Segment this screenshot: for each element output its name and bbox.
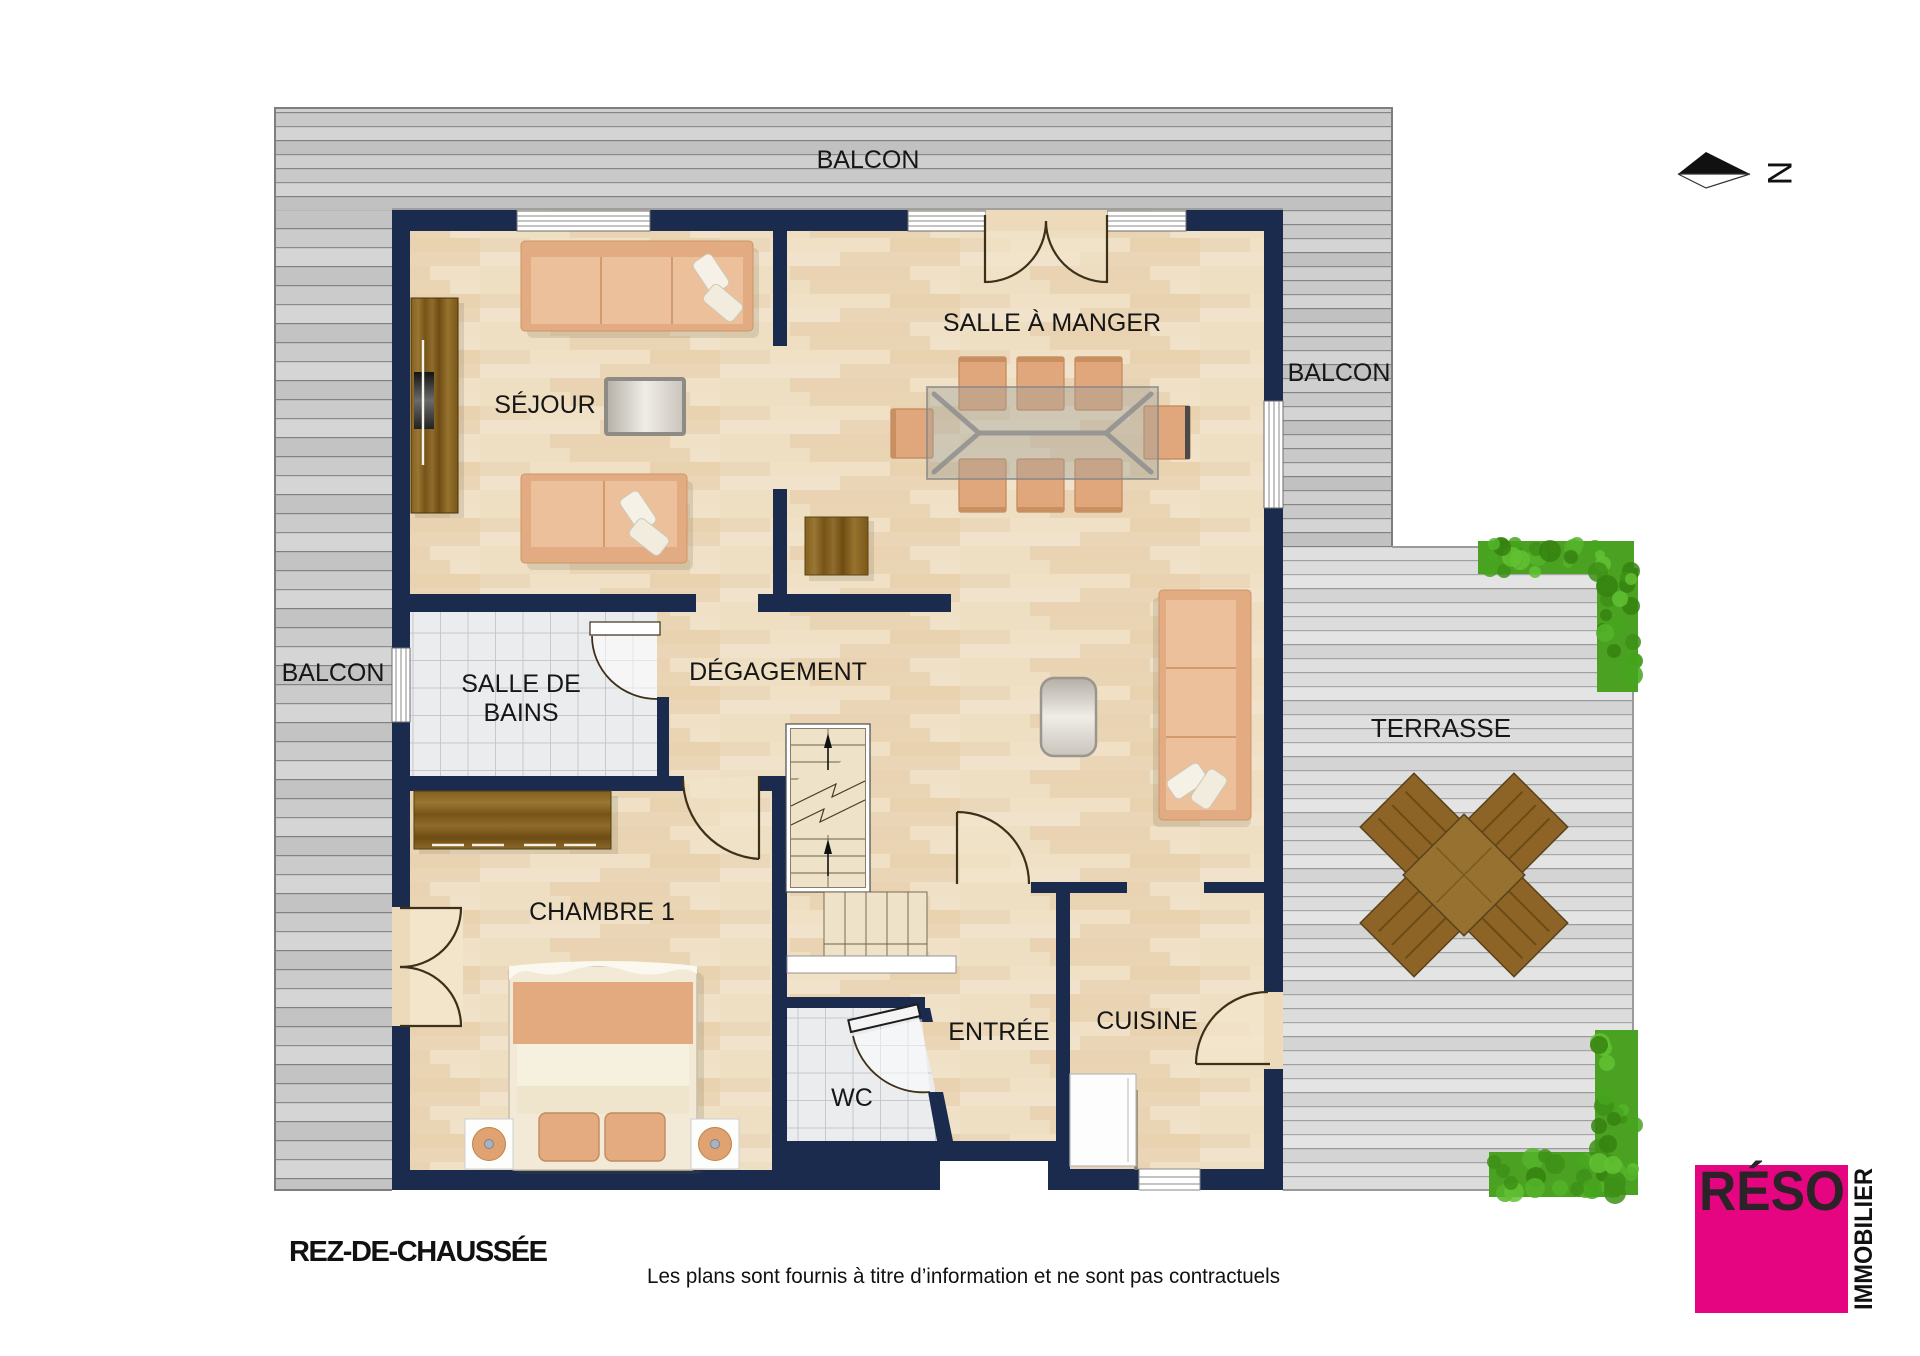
svg-text:CHAMBRE 1: CHAMBRE 1	[529, 898, 675, 926]
svg-text:CUISINE: CUISINE	[1096, 1007, 1197, 1035]
svg-text:N: N	[1760, 161, 1798, 186]
svg-text:SÉJOUR: SÉJOUR	[494, 390, 595, 419]
svg-text:TERRASSE: TERRASSE	[1371, 713, 1511, 743]
svg-text:BAINS: BAINS	[483, 699, 558, 727]
svg-text:SALLE À MANGER: SALLE À MANGER	[943, 308, 1161, 337]
svg-text:BALCON: BALCON	[1288, 359, 1391, 387]
svg-text:SALLE DE: SALLE DE	[461, 670, 581, 698]
svg-text:REZ-DE-CHAUSSÉE: REZ-DE-CHAUSSÉE	[289, 1234, 548, 1268]
svg-text:WC: WC	[831, 1084, 873, 1112]
svg-text:DÉGAGEMENT: DÉGAGEMENT	[689, 657, 867, 686]
svg-text:IMMOBILIER: IMMOBILIER	[1850, 1168, 1878, 1310]
svg-text:Les plans sont fournis à titre: Les plans sont fournis à titre d’informa…	[647, 1264, 1280, 1288]
svg-text:RÉSO: RÉSO	[1699, 1159, 1845, 1222]
svg-text:BALCON: BALCON	[817, 146, 920, 174]
svg-text:BALCON: BALCON	[282, 659, 385, 687]
svg-text:ENTRÉE: ENTRÉE	[948, 1017, 1049, 1046]
